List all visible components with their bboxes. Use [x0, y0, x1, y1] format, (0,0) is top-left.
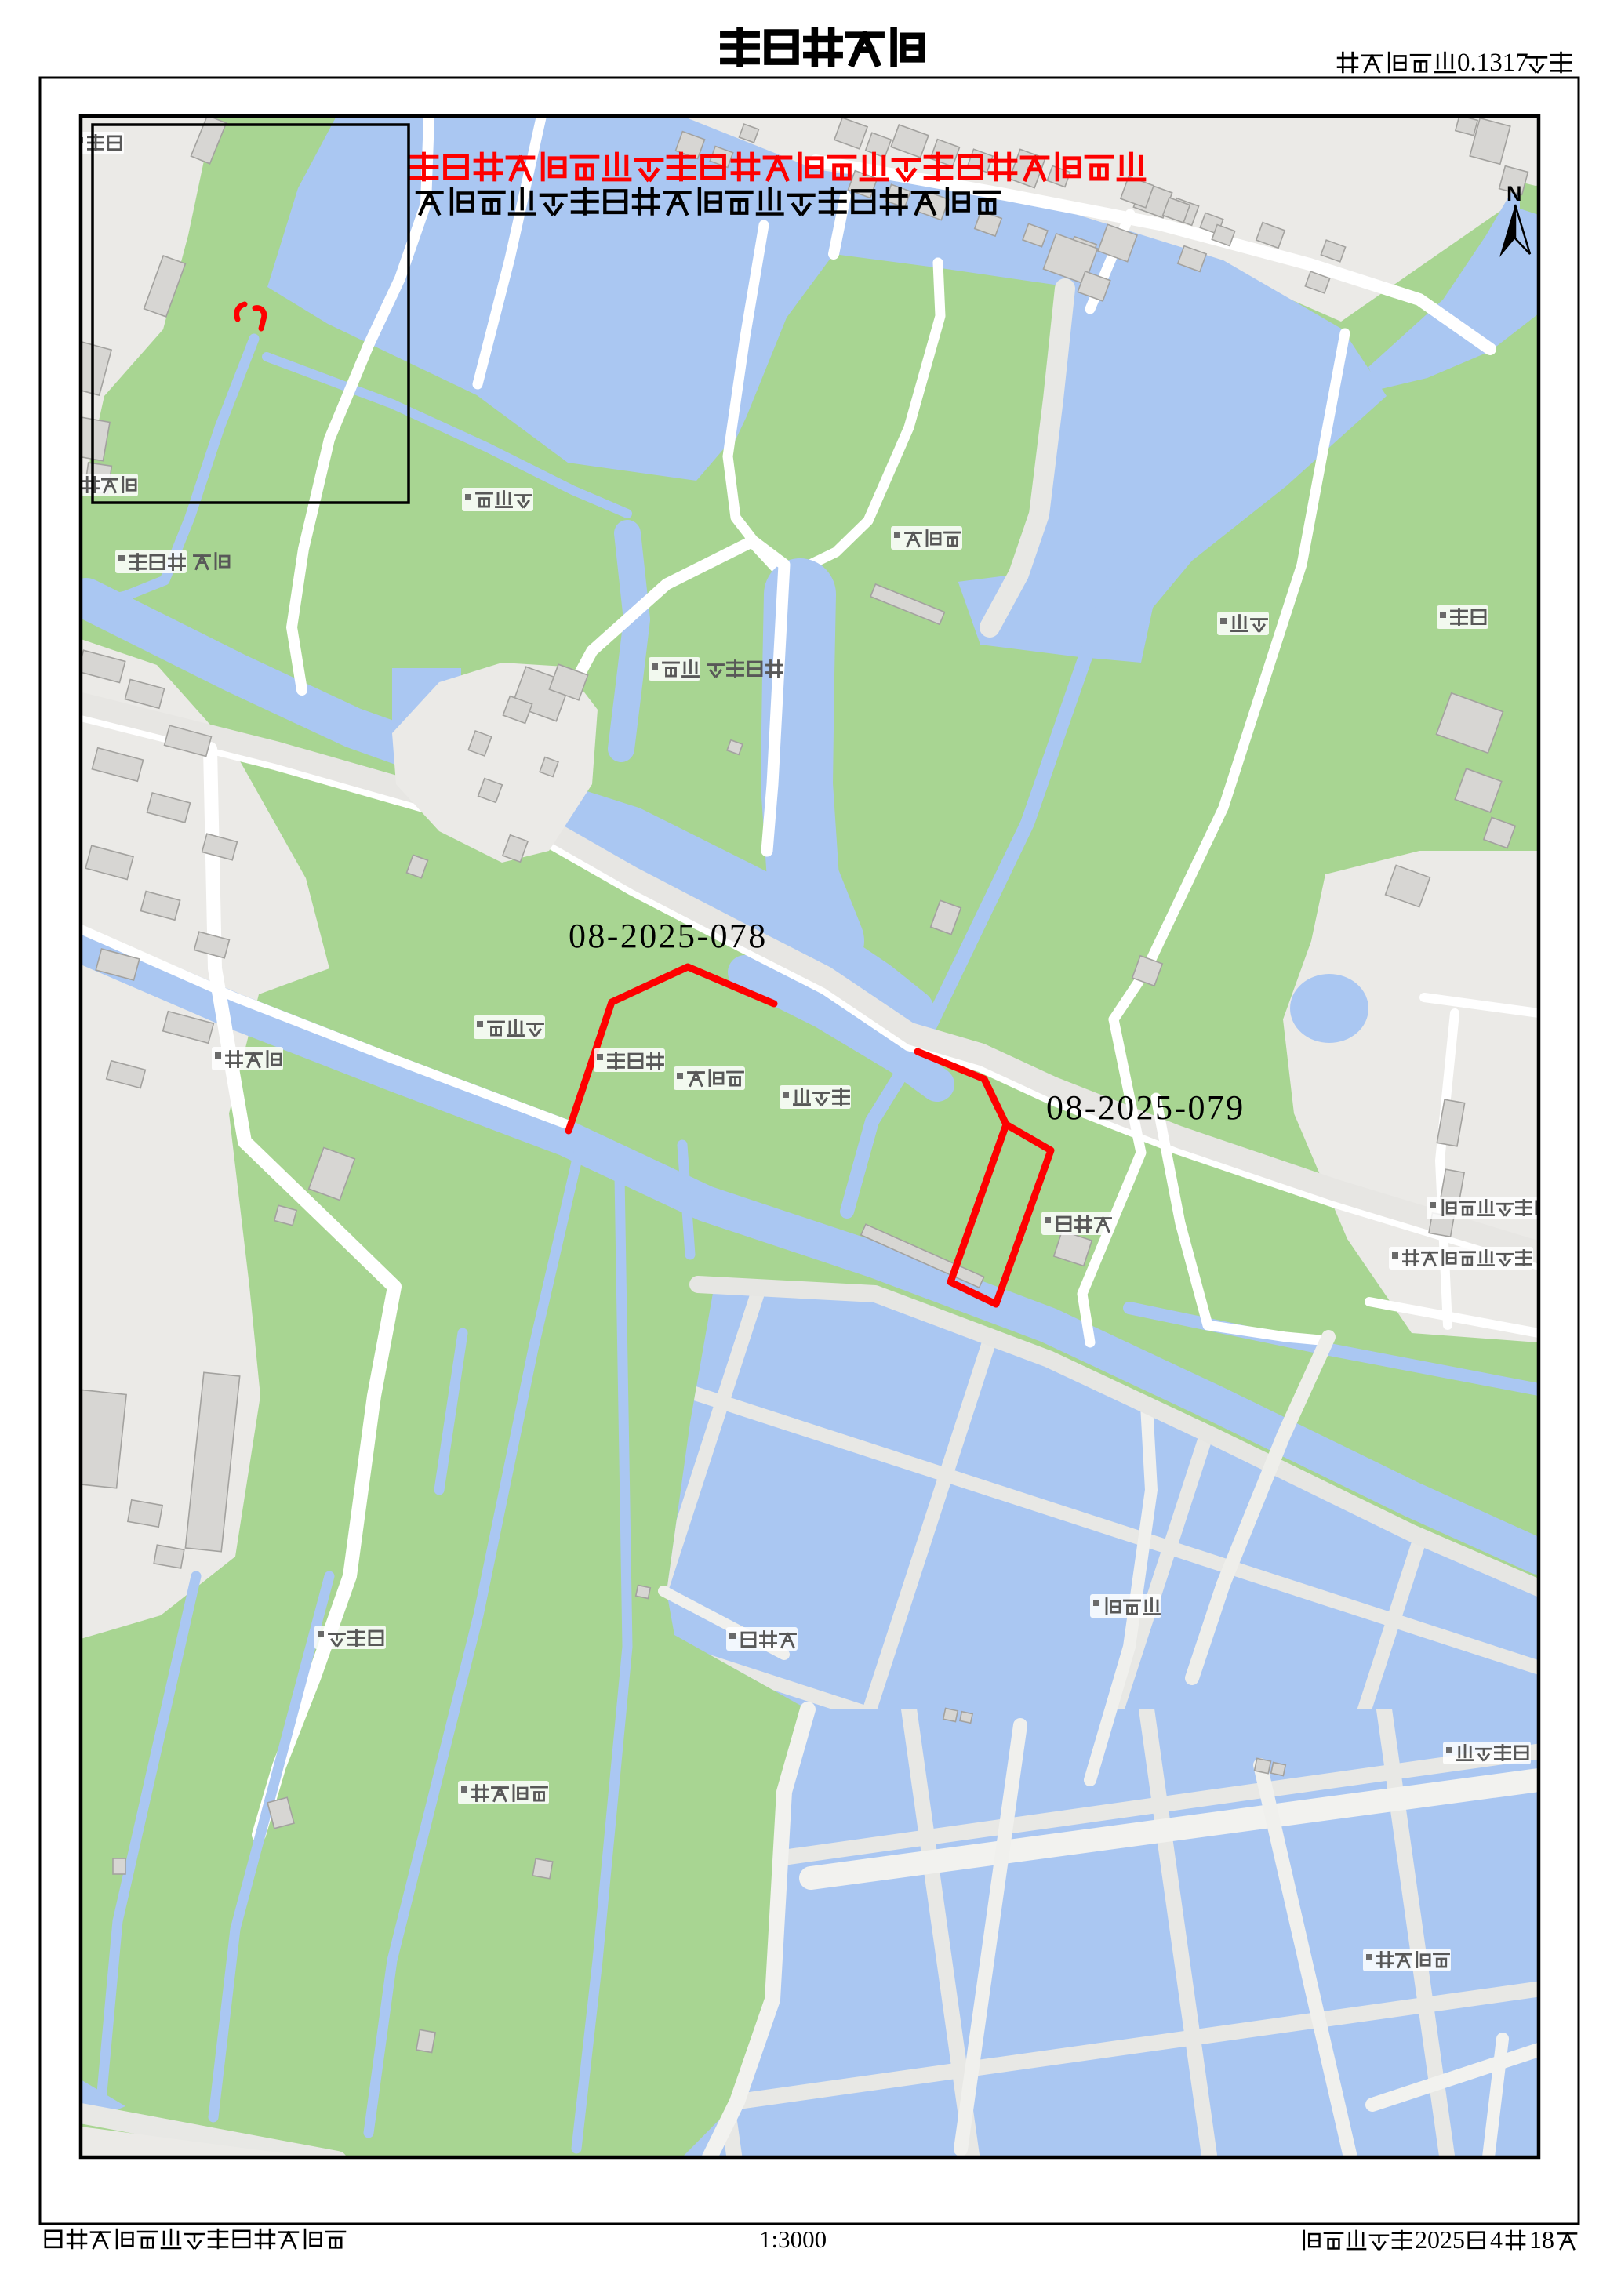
- svg-text:08-2025-079: 08-2025-079: [1046, 1088, 1245, 1127]
- svg-text:0.1317: 0.1317: [1457, 49, 1528, 77]
- svg-text:4: 4: [1490, 2225, 1503, 2254]
- svg-text:2025: 2025: [1415, 2225, 1465, 2254]
- svg-text:N: N: [1507, 182, 1522, 205]
- svg-text:08-2025-078: 08-2025-078: [569, 917, 768, 955]
- svg-text:1:3000: 1:3000: [759, 2225, 827, 2253]
- svg-text:18: 18: [1529, 2225, 1554, 2254]
